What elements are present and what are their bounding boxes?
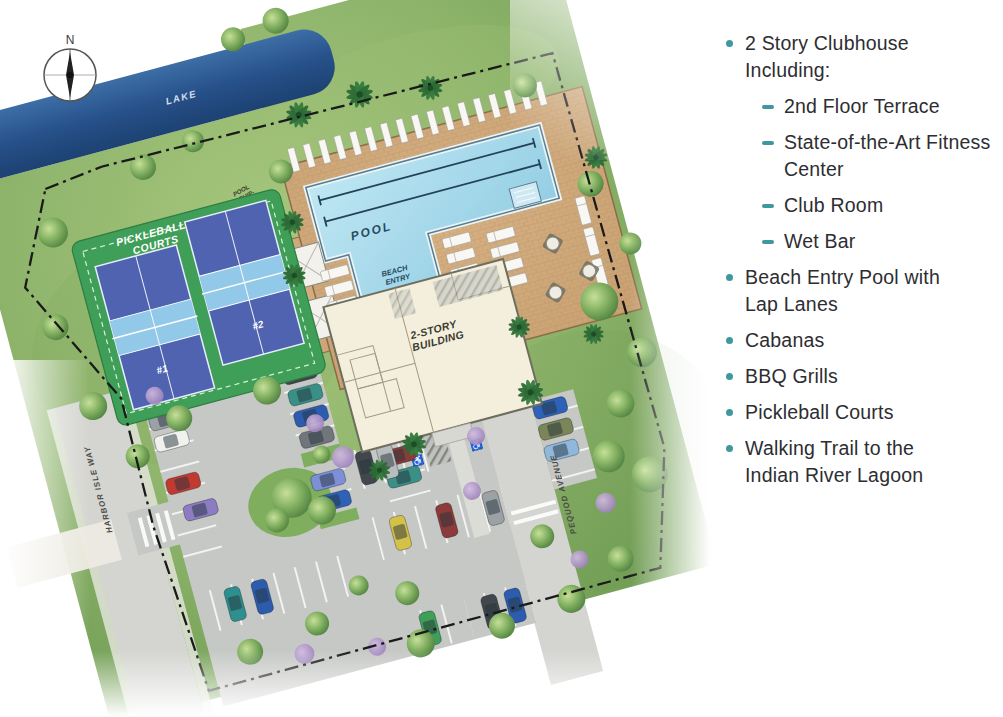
edge-fade-bottom: [0, 650, 710, 717]
dash-icon: [762, 105, 774, 109]
legend-subitem: Club Room: [726, 192, 997, 219]
legend-item-label: 2 Story Clubhouse Including:: [745, 30, 959, 84]
compass-icon: N: [44, 33, 96, 101]
legend-subitem: Wet Bar: [726, 228, 997, 255]
legend-item: BBQ Grills: [726, 363, 997, 390]
bullet-icon: [726, 40, 733, 47]
legend-item: Beach Entry Pool with Lap Lanes: [726, 264, 997, 318]
legend-item-label: Pickleball Courts: [745, 399, 894, 426]
legend-item-label: 2nd Floor Terrace: [784, 93, 940, 120]
compass-north-label: N: [66, 33, 75, 47]
bullet-icon: [726, 409, 733, 416]
legend-item-label: State-of-the-Art Fitness Center: [784, 129, 997, 183]
bullet-icon: [726, 373, 733, 380]
legend-item-label: Wet Bar: [784, 228, 855, 255]
legend-subitem: 2nd Floor Terrace: [726, 93, 997, 120]
dash-icon: [762, 240, 774, 244]
amenities-list: 2 Story Clubhouse Including: 2nd Floor T…: [712, 30, 997, 489]
legend-item: Cabanas: [726, 327, 997, 354]
legend-item-label: Club Room: [784, 192, 883, 219]
edge-fade-left: [0, 360, 90, 717]
legend-item: 2 Story Clubhouse Including:: [726, 30, 997, 84]
dash-icon: [762, 204, 774, 208]
legend-item: Pickleball Courts: [726, 399, 997, 426]
bullet-icon: [726, 274, 733, 281]
legend-item: Walking Trail to the Indian River Lagoon: [726, 435, 997, 489]
legend-item-label: Cabanas: [745, 327, 824, 354]
dash-icon: [762, 141, 774, 145]
page: { "legend": { "bullet_color": "#3f98a0",…: [0, 0, 1003, 717]
bullet-icon: [726, 445, 733, 452]
legend-item-label: Beach Entry Pool with Lap Lanes: [745, 264, 959, 318]
legend-item-label: BBQ Grills: [745, 363, 838, 390]
amenities-legend: 2 Story Clubhouse Including: 2nd Floor T…: [712, 30, 997, 498]
legend-subitem: State-of-the-Art Fitness Center: [726, 129, 997, 183]
site-plan: LAKE: [0, 0, 710, 717]
bullet-icon: [726, 337, 733, 344]
edge-fade-top-right: [510, 0, 710, 160]
site-plan-svg: LAKE: [0, 0, 710, 717]
legend-item-label: Walking Trail to the Indian River Lagoon: [745, 435, 959, 489]
